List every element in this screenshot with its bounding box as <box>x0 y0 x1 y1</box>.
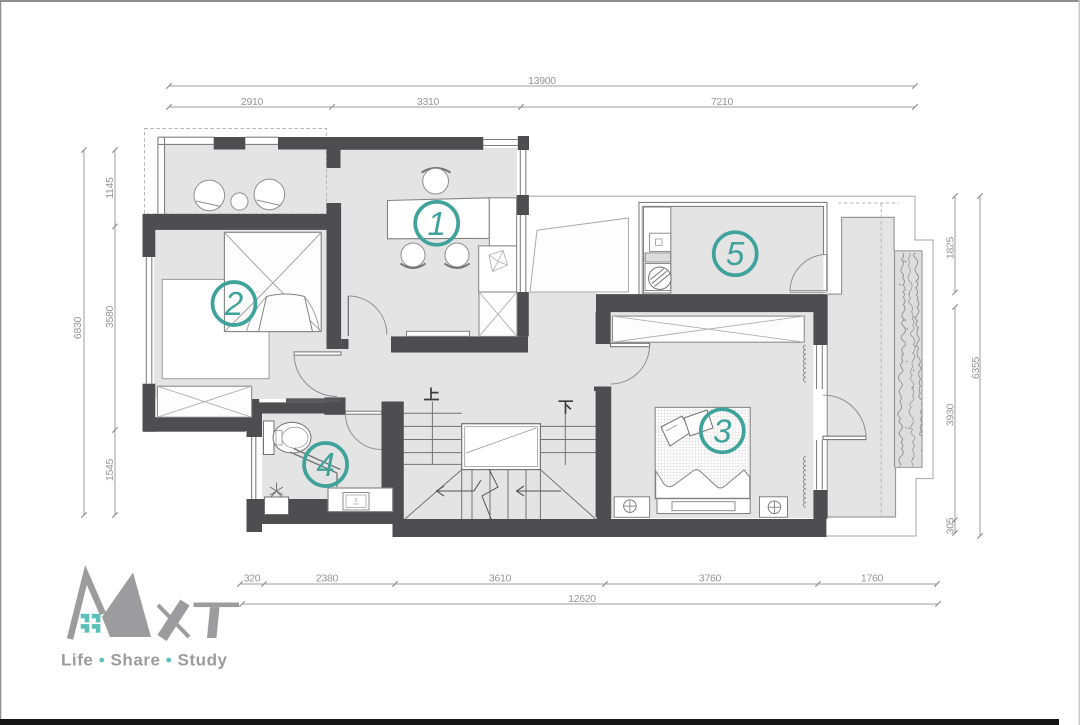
svg-text:3: 3 <box>713 412 732 449</box>
svg-text:2910: 2910 <box>241 96 264 108</box>
svg-text:6355: 6355 <box>970 356 982 379</box>
svg-text:1760: 1760 <box>861 573 884 585</box>
svg-text:3760: 3760 <box>699 573 722 585</box>
svg-text:1145: 1145 <box>104 177 116 199</box>
svg-text:305: 305 <box>945 517 957 534</box>
svg-text:3580: 3580 <box>104 305 116 328</box>
svg-text:1545: 1545 <box>104 458 116 481</box>
svg-text:3610: 3610 <box>489 573 512 585</box>
svg-text:13900: 13900 <box>528 75 556 87</box>
svg-text:4: 4 <box>316 446 334 483</box>
svg-text:1825: 1825 <box>945 236 957 259</box>
svg-text:3310: 3310 <box>417 96 440 108</box>
svg-text:1: 1 <box>428 205 446 242</box>
svg-text:12620: 12620 <box>568 593 596 605</box>
svg-text:3930: 3930 <box>945 403 957 426</box>
svg-text:320: 320 <box>244 573 261 585</box>
svg-text:5: 5 <box>726 235 745 272</box>
svg-text:2: 2 <box>224 285 243 322</box>
svg-text:6830: 6830 <box>72 316 84 339</box>
svg-text:7210: 7210 <box>711 96 734 108</box>
svg-text:Life • Share • Study: Life • Share • Study <box>61 651 228 670</box>
svg-text:2380: 2380 <box>316 573 339 585</box>
